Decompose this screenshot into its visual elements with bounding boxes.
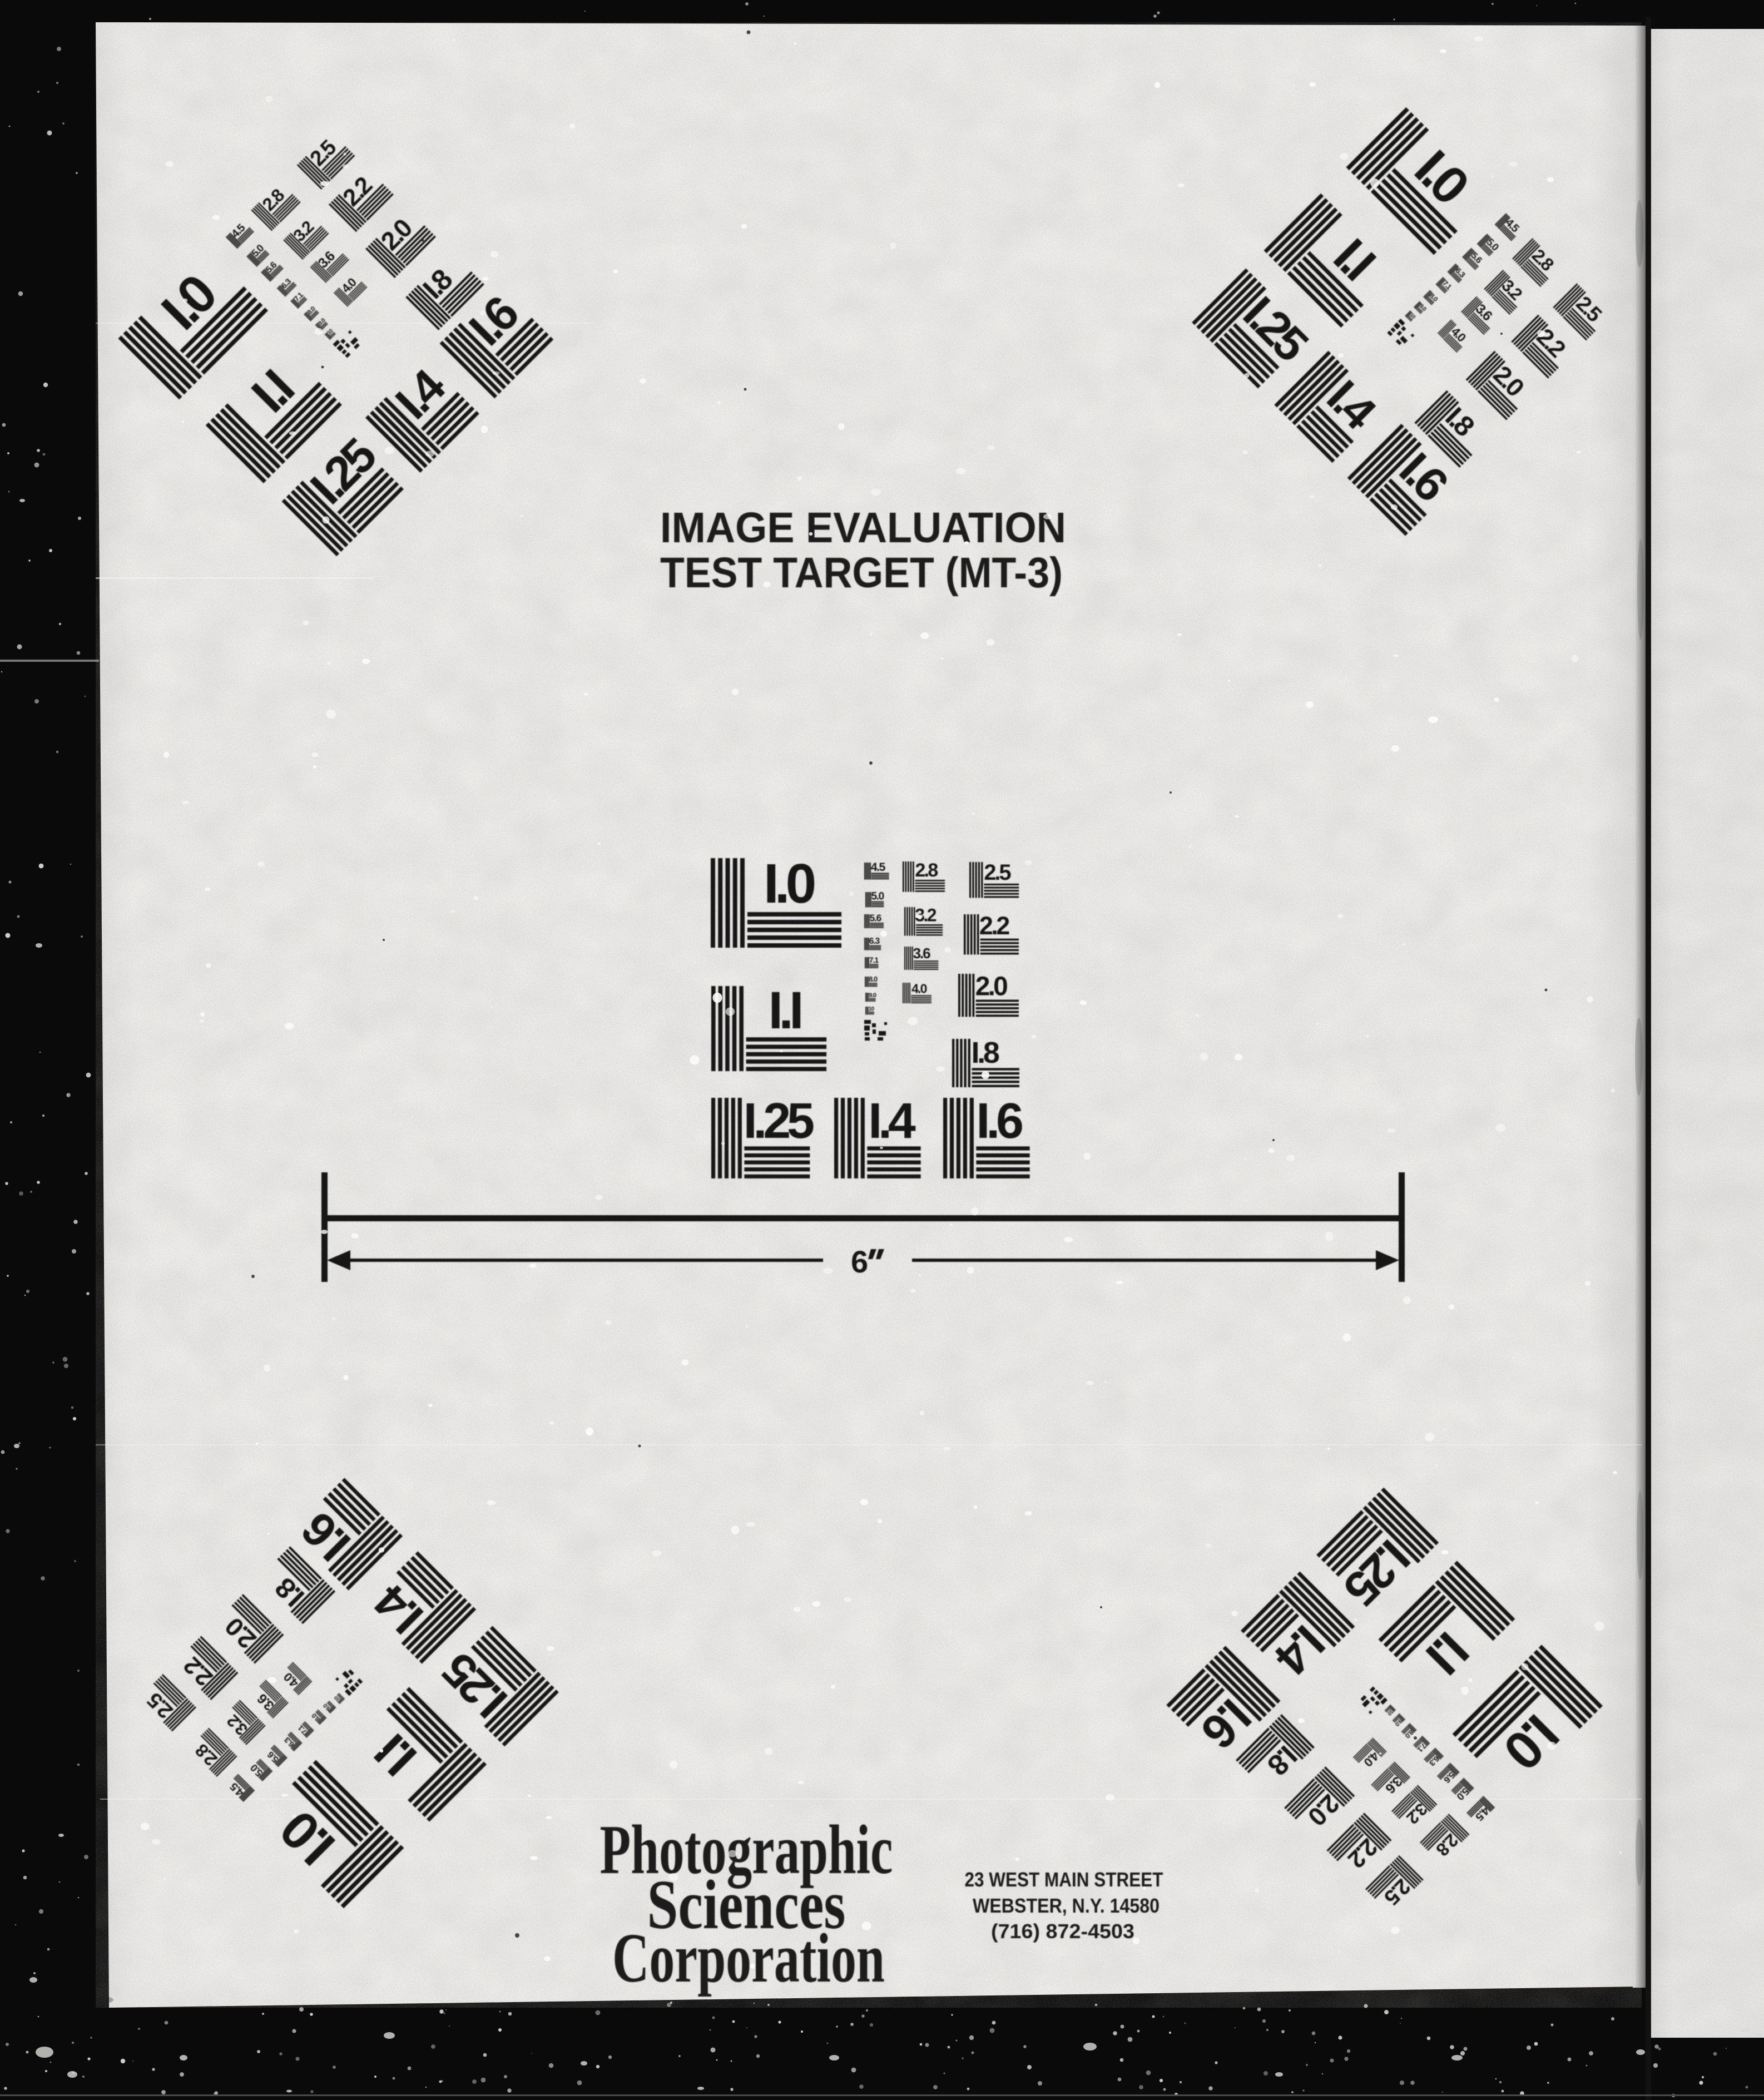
- svg-text:Corporation: Corporation: [612, 1920, 885, 1997]
- svg-text:WEBSTER, N.Y. 14580: WEBSTER, N.Y. 14580: [973, 1894, 1160, 1917]
- svg-text:TEST TARGET (MT-3): TEST TARGET (MT-3): [660, 549, 1063, 597]
- svg-text:23 WEST MAIN STREET: 23 WEST MAIN STREET: [965, 1868, 1163, 1891]
- svg-text:(716) 872-4503: (716) 872-4503: [991, 1920, 1134, 1943]
- svg-text:IMAGE EVALUATION: IMAGE EVALUATION: [660, 504, 1066, 552]
- svg-text:6: 6: [851, 1244, 868, 1279]
